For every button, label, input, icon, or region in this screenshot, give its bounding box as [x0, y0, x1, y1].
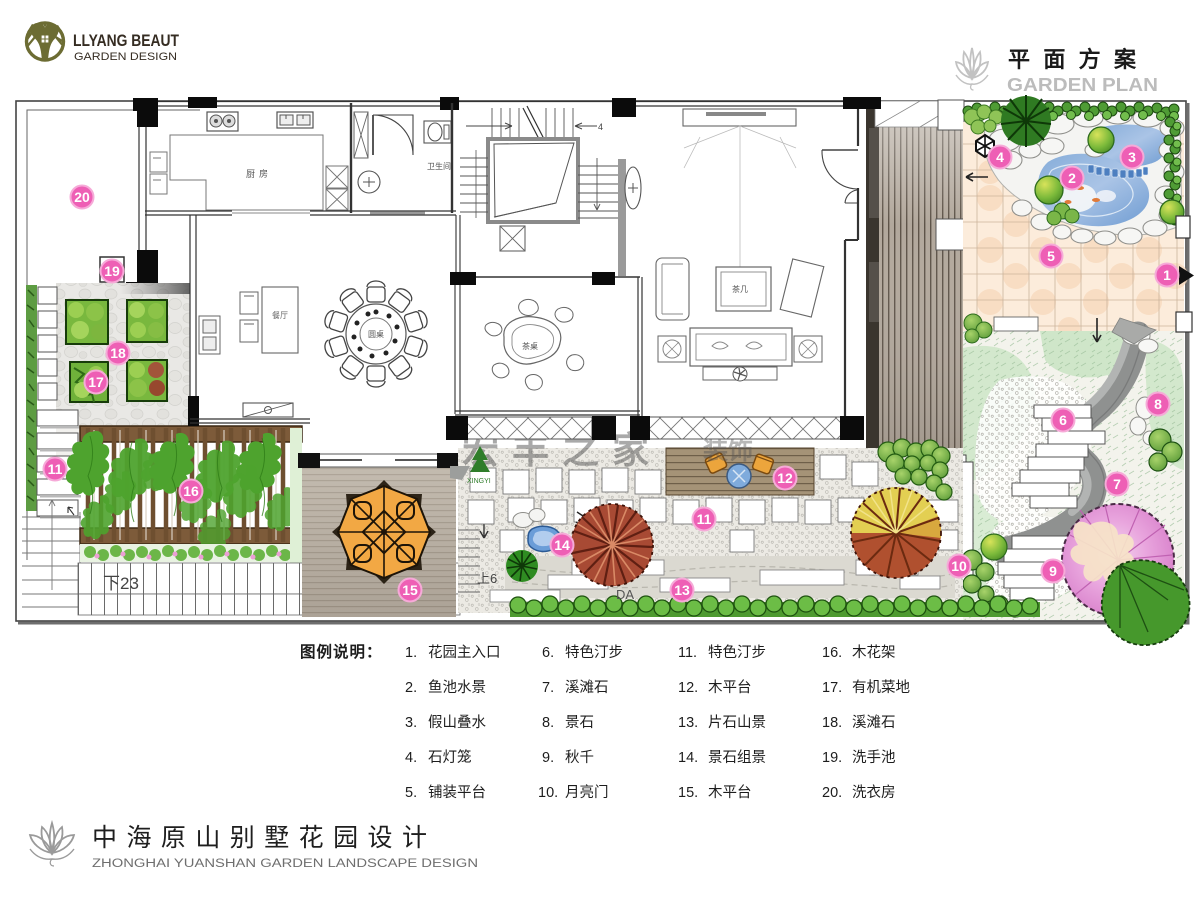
svg-text:圆桌: 圆桌 — [368, 329, 384, 339]
svg-text:上6: 上6 — [477, 571, 497, 586]
svg-text:假山叠水: 假山叠水 — [428, 714, 486, 731]
svg-text:厨房: 厨房 — [246, 168, 272, 179]
svg-text:4.: 4. — [405, 750, 417, 766]
svg-text:铺装平台: 铺装平台 — [428, 784, 486, 801]
svg-text:特色汀步: 特色汀步 — [708, 644, 766, 661]
svg-text:15: 15 — [402, 582, 418, 598]
svg-text:9: 9 — [1049, 563, 1057, 579]
svg-text:19.: 19. — [822, 750, 842, 766]
svg-text:7: 7 — [1113, 476, 1121, 492]
svg-text:平 面 方 案: 平 面 方 案 — [1008, 47, 1137, 72]
svg-text:洗衣房: 洗衣房 — [852, 784, 896, 801]
svg-text:木花架: 木花架 — [852, 644, 896, 661]
svg-text:5.: 5. — [405, 785, 417, 801]
svg-text:18: 18 — [110, 345, 126, 361]
svg-text:1.: 1. — [405, 645, 417, 661]
svg-text:景石: 景石 — [565, 715, 594, 731]
svg-text:11: 11 — [48, 461, 63, 477]
svg-text:片石山景: 片石山景 — [708, 714, 766, 731]
svg-text:洗手池: 洗手池 — [852, 749, 896, 766]
svg-text:6.: 6. — [542, 645, 554, 661]
svg-text:3: 3 — [1128, 149, 1136, 165]
svg-text:茶几: 茶几 — [732, 284, 748, 294]
svg-text:19: 19 — [104, 263, 120, 279]
svg-text:鱼池水景: 鱼池水景 — [428, 678, 486, 696]
svg-text:8: 8 — [1154, 396, 1162, 412]
svg-text:6: 6 — [1059, 412, 1067, 428]
svg-text:餐厅: 餐厅 — [272, 311, 288, 320]
svg-text:5: 5 — [1047, 248, 1055, 264]
svg-text:10: 10 — [951, 558, 967, 574]
svg-text:LLYANG BEAUT: LLYANG BEAUT — [73, 31, 179, 50]
svg-text:溪滩石: 溪滩石 — [852, 714, 896, 731]
svg-text:溪滩石: 溪滩石 — [565, 679, 609, 696]
svg-text:18.: 18. — [822, 715, 842, 731]
svg-text:13.: 13. — [678, 715, 698, 731]
svg-text:特色汀步: 特色汀步 — [565, 644, 623, 661]
svg-text:13: 13 — [674, 582, 690, 598]
svg-text:20.: 20. — [822, 785, 842, 801]
svg-text:17.: 17. — [822, 680, 842, 696]
svg-text:1: 1 — [1163, 267, 1171, 283]
svg-text:有机菜地: 有机菜地 — [852, 679, 910, 696]
svg-text:DA: DA — [616, 587, 634, 602]
svg-text:2.: 2. — [405, 680, 417, 696]
svg-text:17: 17 — [88, 374, 104, 390]
svg-text:4: 4 — [996, 149, 1004, 165]
svg-text:12.: 12. — [678, 680, 698, 696]
svg-text:11.: 11. — [678, 645, 697, 661]
svg-text:14.: 14. — [678, 750, 698, 766]
svg-text:14: 14 — [554, 537, 570, 553]
svg-text:10.: 10. — [538, 785, 558, 801]
svg-text:装饰: 装饰 — [703, 437, 753, 465]
svg-text:GARDEN PLAN: GARDEN PLAN — [1007, 74, 1158, 95]
svg-text:2: 2 — [1068, 170, 1076, 186]
svg-text:卫生间: 卫生间 — [427, 161, 451, 171]
svg-text:秋千: 秋千 — [565, 749, 594, 766]
svg-text:木平台: 木平台 — [708, 679, 752, 696]
svg-text:月亮门: 月亮门 — [565, 784, 609, 801]
svg-text:石灯笼: 石灯笼 — [428, 749, 472, 766]
svg-text:茶桌: 茶桌 — [522, 341, 538, 351]
svg-text:7.: 7. — [542, 680, 554, 696]
svg-text:4: 4 — [598, 122, 603, 132]
svg-text:15.: 15. — [678, 785, 698, 801]
svg-text:16.: 16. — [822, 645, 842, 661]
svg-text:下23: 下23 — [103, 574, 139, 593]
svg-text:16: 16 — [183, 483, 199, 499]
svg-text:ZHONGHAI YUANSHAN GARDEN LANDS: ZHONGHAI YUANSHAN GARDEN LANDSCAPE DESIG… — [92, 858, 478, 870]
svg-text:景石组景: 景石组景 — [708, 749, 766, 766]
svg-text:花园主入口: 花园主入口 — [428, 644, 501, 661]
svg-text:8.: 8. — [542, 715, 554, 731]
svg-text:20: 20 — [74, 189, 90, 205]
svg-text:12: 12 — [777, 470, 793, 486]
svg-text:9.: 9. — [542, 750, 554, 766]
svg-text:木平台: 木平台 — [708, 784, 752, 801]
svg-text:XINGYI: XINGYI — [467, 478, 491, 485]
svg-text:GARDEN DESIGN: GARDEN DESIGN — [74, 51, 177, 63]
svg-text:3.: 3. — [405, 715, 417, 731]
svg-text:11: 11 — [697, 511, 712, 527]
svg-text:图例说明：: 图例说明： — [300, 642, 383, 661]
